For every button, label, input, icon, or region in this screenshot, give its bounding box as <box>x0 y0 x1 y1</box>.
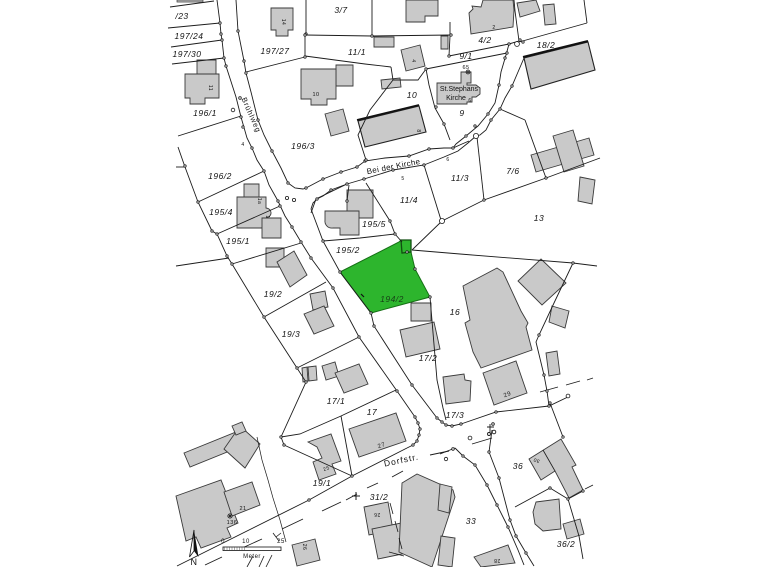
svg-text:26: 26 <box>301 544 307 551</box>
svg-text:17/2: 17/2 <box>419 353 438 363</box>
svg-text:St.Stephans: St.Stephans <box>440 86 479 93</box>
svg-text:195/2: 195/2 <box>336 245 360 255</box>
svg-text:65: 65 <box>462 65 469 71</box>
svg-text:196/2: 196/2 <box>208 171 232 181</box>
svg-text:11/1: 11/1 <box>348 47 366 57</box>
svg-text:16: 16 <box>450 307 460 317</box>
svg-text:19/1: 19/1 <box>313 478 332 488</box>
svg-text:195/5: 195/5 <box>362 219 386 229</box>
svg-text:7/6: 7/6 <box>506 166 519 176</box>
svg-text:36/2: 36/2 <box>557 539 576 549</box>
svg-text:17/1: 17/1 <box>327 396 346 406</box>
svg-text:10: 10 <box>407 90 417 100</box>
svg-text:/23: /23 <box>174 11 188 21</box>
svg-text:11/4: 11/4 <box>400 195 418 205</box>
svg-text:13: 13 <box>534 213 544 223</box>
svg-text:33: 33 <box>466 516 476 526</box>
svg-text:196/3: 196/3 <box>291 141 315 151</box>
svg-text:36: 36 <box>513 461 523 471</box>
svg-text:9: 9 <box>459 108 464 118</box>
svg-text:194/2: 194/2 <box>380 294 404 304</box>
svg-text:4: 4 <box>241 142 244 148</box>
svg-text:11/3: 11/3 <box>451 173 469 183</box>
svg-text:17: 17 <box>367 407 377 417</box>
svg-text:195/1: 195/1 <box>226 236 250 246</box>
svg-text:197/30: 197/30 <box>173 49 202 59</box>
svg-text:11: 11 <box>207 85 213 91</box>
svg-text:6: 6 <box>468 98 471 104</box>
svg-text:2: 2 <box>492 25 495 31</box>
svg-text:6: 6 <box>446 157 449 163</box>
svg-text:17/3: 17/3 <box>446 410 465 420</box>
svg-text:0: 0 <box>221 539 225 545</box>
svg-text:195/4: 195/4 <box>209 207 233 217</box>
svg-text:5: 5 <box>401 176 404 182</box>
svg-text:N: N <box>191 557 198 567</box>
svg-text:18/2: 18/2 <box>537 40 556 50</box>
svg-text:28: 28 <box>494 557 501 563</box>
svg-text:136: 136 <box>227 520 238 526</box>
svg-text:4: 4 <box>410 59 416 62</box>
svg-text:10: 10 <box>312 92 319 98</box>
svg-text:31/2: 31/2 <box>370 492 389 502</box>
svg-text:197/27: 197/27 <box>261 46 290 56</box>
svg-text:19/2: 19/2 <box>264 289 283 299</box>
svg-text:Meter: Meter <box>243 554 261 560</box>
svg-text:4/2: 4/2 <box>478 35 491 45</box>
svg-text:1: 1 <box>264 215 270 218</box>
svg-text:21: 21 <box>239 506 246 512</box>
svg-text:3/7: 3/7 <box>334 5 347 15</box>
svg-text:9/1: 9/1 <box>459 51 472 61</box>
svg-text:Kirche: Kirche <box>446 95 466 102</box>
svg-text:19/3: 19/3 <box>282 329 301 339</box>
svg-text:14: 14 <box>280 19 286 26</box>
svg-text:10: 10 <box>242 539 250 545</box>
svg-text:26: 26 <box>374 511 381 517</box>
svg-text:196/1: 196/1 <box>193 108 217 118</box>
svg-text:1a: 1a <box>256 198 262 205</box>
svg-text:25: 25 <box>277 539 285 545</box>
svg-text:8: 8 <box>415 129 421 132</box>
svg-text:197/24: 197/24 <box>175 31 204 41</box>
